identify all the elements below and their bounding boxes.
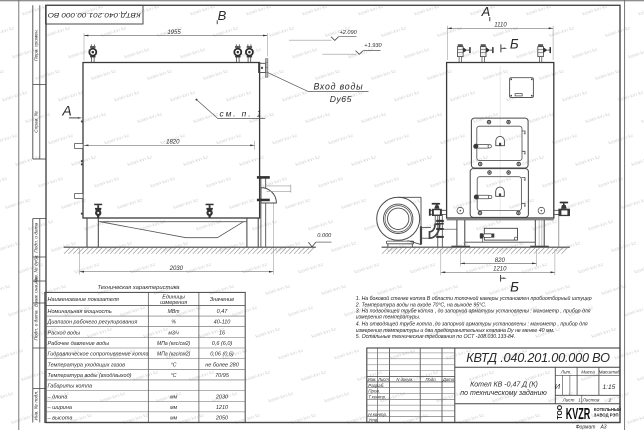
svg-text:А: А	[481, 4, 491, 19]
svg-text:Пров.: Пров.	[368, 389, 380, 394]
svg-text:2. Температура воды на входе: 2. Температура воды на входе 70°С, на вы…	[355, 302, 487, 308]
svg-text:см. п. 1: см. п. 1	[220, 108, 264, 118]
svg-text:Утв.: Утв.	[368, 417, 378, 422]
svg-text:Dy65: Dy65	[330, 94, 352, 104]
svg-text:Изм.: Изм.	[368, 377, 377, 382]
svg-text:2050: 2050	[215, 416, 229, 422]
svg-text:Значение: Значение	[210, 297, 235, 303]
svg-text:0.000: 0.000	[317, 233, 332, 239]
svg-text:1: 1	[578, 397, 581, 402]
svg-text:Листов: Листов	[582, 397, 600, 402]
svg-text:70/95: 70/95	[215, 373, 230, 379]
svg-text:Подп. и дата: Подп. и дата	[34, 222, 40, 252]
svg-text:– высота: – высота	[47, 416, 73, 422]
svg-text:Подп.: Подп.	[426, 377, 437, 382]
svg-text:измерения температуры.: измерения температуры.	[356, 314, 421, 320]
svg-text:Б: Б	[510, 37, 519, 52]
svg-text:820: 820	[495, 258, 506, 264]
svg-text:4. На отводящей трубе котла ,: 4. На отводящей трубе котла ,до запорной…	[356, 321, 588, 328]
svg-text:Котел КВ -0,47 Д (К): Котел КВ -0,47 Д (К)	[470, 382, 538, 389]
svg-text:2: 2	[608, 397, 612, 402]
svg-text:И: И	[555, 382, 561, 391]
svg-text:0,47: 0,47	[217, 309, 229, 315]
svg-text:1110: 1110	[494, 23, 507, 29]
svg-text:– длина: – длина	[47, 394, 68, 400]
svg-text:N докум.: N докум.	[396, 377, 413, 382]
svg-text:0,6 (6,0): 0,6 (6,0)	[212, 341, 233, 347]
svg-text:Номинальная мощность: Номинальная мощность	[48, 309, 112, 315]
svg-text:Н.контр.: Н.контр.	[368, 412, 387, 417]
svg-text:МПа (кгс/см2): МПа (кгс/см2)	[157, 341, 191, 347]
svg-text:не более 280: не более 280	[205, 362, 240, 368]
svg-text:Гидравлическое сопротивление к: Гидравлическое сопротивление котла	[48, 352, 149, 358]
svg-text:2030: 2030	[215, 394, 229, 400]
svg-text:Вход воды: Вход воды	[314, 82, 364, 92]
svg-text:Справ. №: Справ. №	[34, 111, 40, 133]
svg-text:– ширина: – ширина	[47, 405, 72, 411]
svg-text:Масштаб: Масштаб	[599, 369, 621, 374]
svg-text:КВТД .040.201.00.000 ВО: КВТД .040.201.00.000 ВО	[466, 351, 610, 365]
svg-text:Габариты котла: Габариты котла	[48, 384, 93, 390]
svg-text:мм: мм	[170, 405, 177, 411]
svg-text:ЗАВОД РЭП: ЗАВОД РЭП	[594, 413, 619, 418]
svg-text:1955: 1955	[167, 30, 181, 36]
svg-text:Т.контр.: Т.контр.	[368, 395, 386, 400]
svg-text:5. Остальные технические треб: 5. Остальные технические требования по О…	[356, 334, 515, 340]
svg-text:Разраб.: Разраб.	[368, 383, 384, 388]
svg-text:В: В	[218, 8, 227, 23]
svg-text:%: %	[171, 320, 176, 326]
svg-text:Температура уходящих газов: Температура уходящих газов	[48, 362, 126, 368]
svg-text:Лист: Лист	[377, 377, 389, 382]
svg-text:Инв. № подл.: Инв. № подл.	[34, 391, 40, 421]
svg-text:МПа (кгс/см2): МПа (кгс/см2)	[157, 352, 191, 358]
svg-text:°С: °С	[171, 362, 177, 368]
svg-text:1820: 1820	[166, 140, 180, 146]
svg-text:1210: 1210	[216, 405, 229, 411]
svg-text:16: 16	[219, 330, 226, 336]
svg-text:А: А	[61, 102, 71, 118]
svg-text:Формат: Формат	[576, 425, 596, 430]
svg-text:Подп. и дата: Подп. и дата	[34, 310, 40, 340]
svg-text:Диапазон рабочего регулировани: Диапазон рабочего регулирования	[47, 320, 138, 326]
svg-text:Температура воды (вход/выход): Температура воды (вход/выход)	[48, 373, 132, 379]
svg-text:измерения: измерения	[160, 300, 187, 306]
svg-text:Расход воды: Расход воды	[48, 330, 81, 336]
svg-text:м3/ч: м3/ч	[168, 330, 179, 336]
svg-text:1210: 1210	[493, 267, 507, 273]
svg-text:2030: 2030	[169, 266, 184, 272]
svg-text:Наименование показателя: Наименование показателя	[48, 297, 119, 303]
svg-text:А3: А3	[599, 425, 606, 430]
svg-text:1:15: 1:15	[602, 384, 615, 391]
svg-text:40-110: 40-110	[214, 320, 232, 326]
svg-text:Дата: Дата	[442, 377, 455, 382]
svg-text:мм: мм	[170, 394, 177, 400]
svg-text:+2.090: +2.090	[340, 30, 358, 36]
svg-text:Лист: Лист	[562, 397, 575, 402]
svg-text:ТОО: ТОО	[555, 405, 564, 420]
svg-text:КВТД.040.201.00.000 ВО: КВТД.040.201.00.000 ВО	[48, 11, 141, 18]
svg-text:0,06 (0,6): 0,06 (0,6)	[210, 352, 234, 358]
svg-text:°С: °С	[171, 373, 177, 379]
svg-text:Масса: Масса	[581, 369, 595, 374]
svg-text:по техническому заданию: по техническому заданию	[460, 389, 547, 397]
svg-text:+1.930: +1.930	[364, 43, 382, 49]
svg-text:измерения температуры и два пр: измерения температуры и два предохраните…	[356, 328, 555, 334]
svg-text:Лит.: Лит.	[560, 369, 572, 374]
svg-text:Рабочее давление воды: Рабочее давление воды	[48, 341, 110, 347]
svg-text:Б: Б	[510, 279, 519, 294]
svg-text:КОТЕЛЬНЫЙ: КОТЕЛЬНЫЙ	[594, 407, 621, 412]
svg-text:Перв. примен.: Перв. примен.	[34, 29, 40, 61]
svg-text:1. На боковой стенке котла В: 1. На боковой стенке котла В области топ…	[356, 295, 592, 302]
svg-text:Взам. инв. №: Взам. инв. №	[34, 277, 40, 307]
svg-text:KVZR: KVZR	[566, 406, 591, 423]
svg-text:мм: мм	[170, 416, 177, 422]
svg-text:МВт: МВт	[168, 309, 180, 315]
svg-text:Техническая характеристика: Техническая характеристика	[97, 285, 180, 291]
